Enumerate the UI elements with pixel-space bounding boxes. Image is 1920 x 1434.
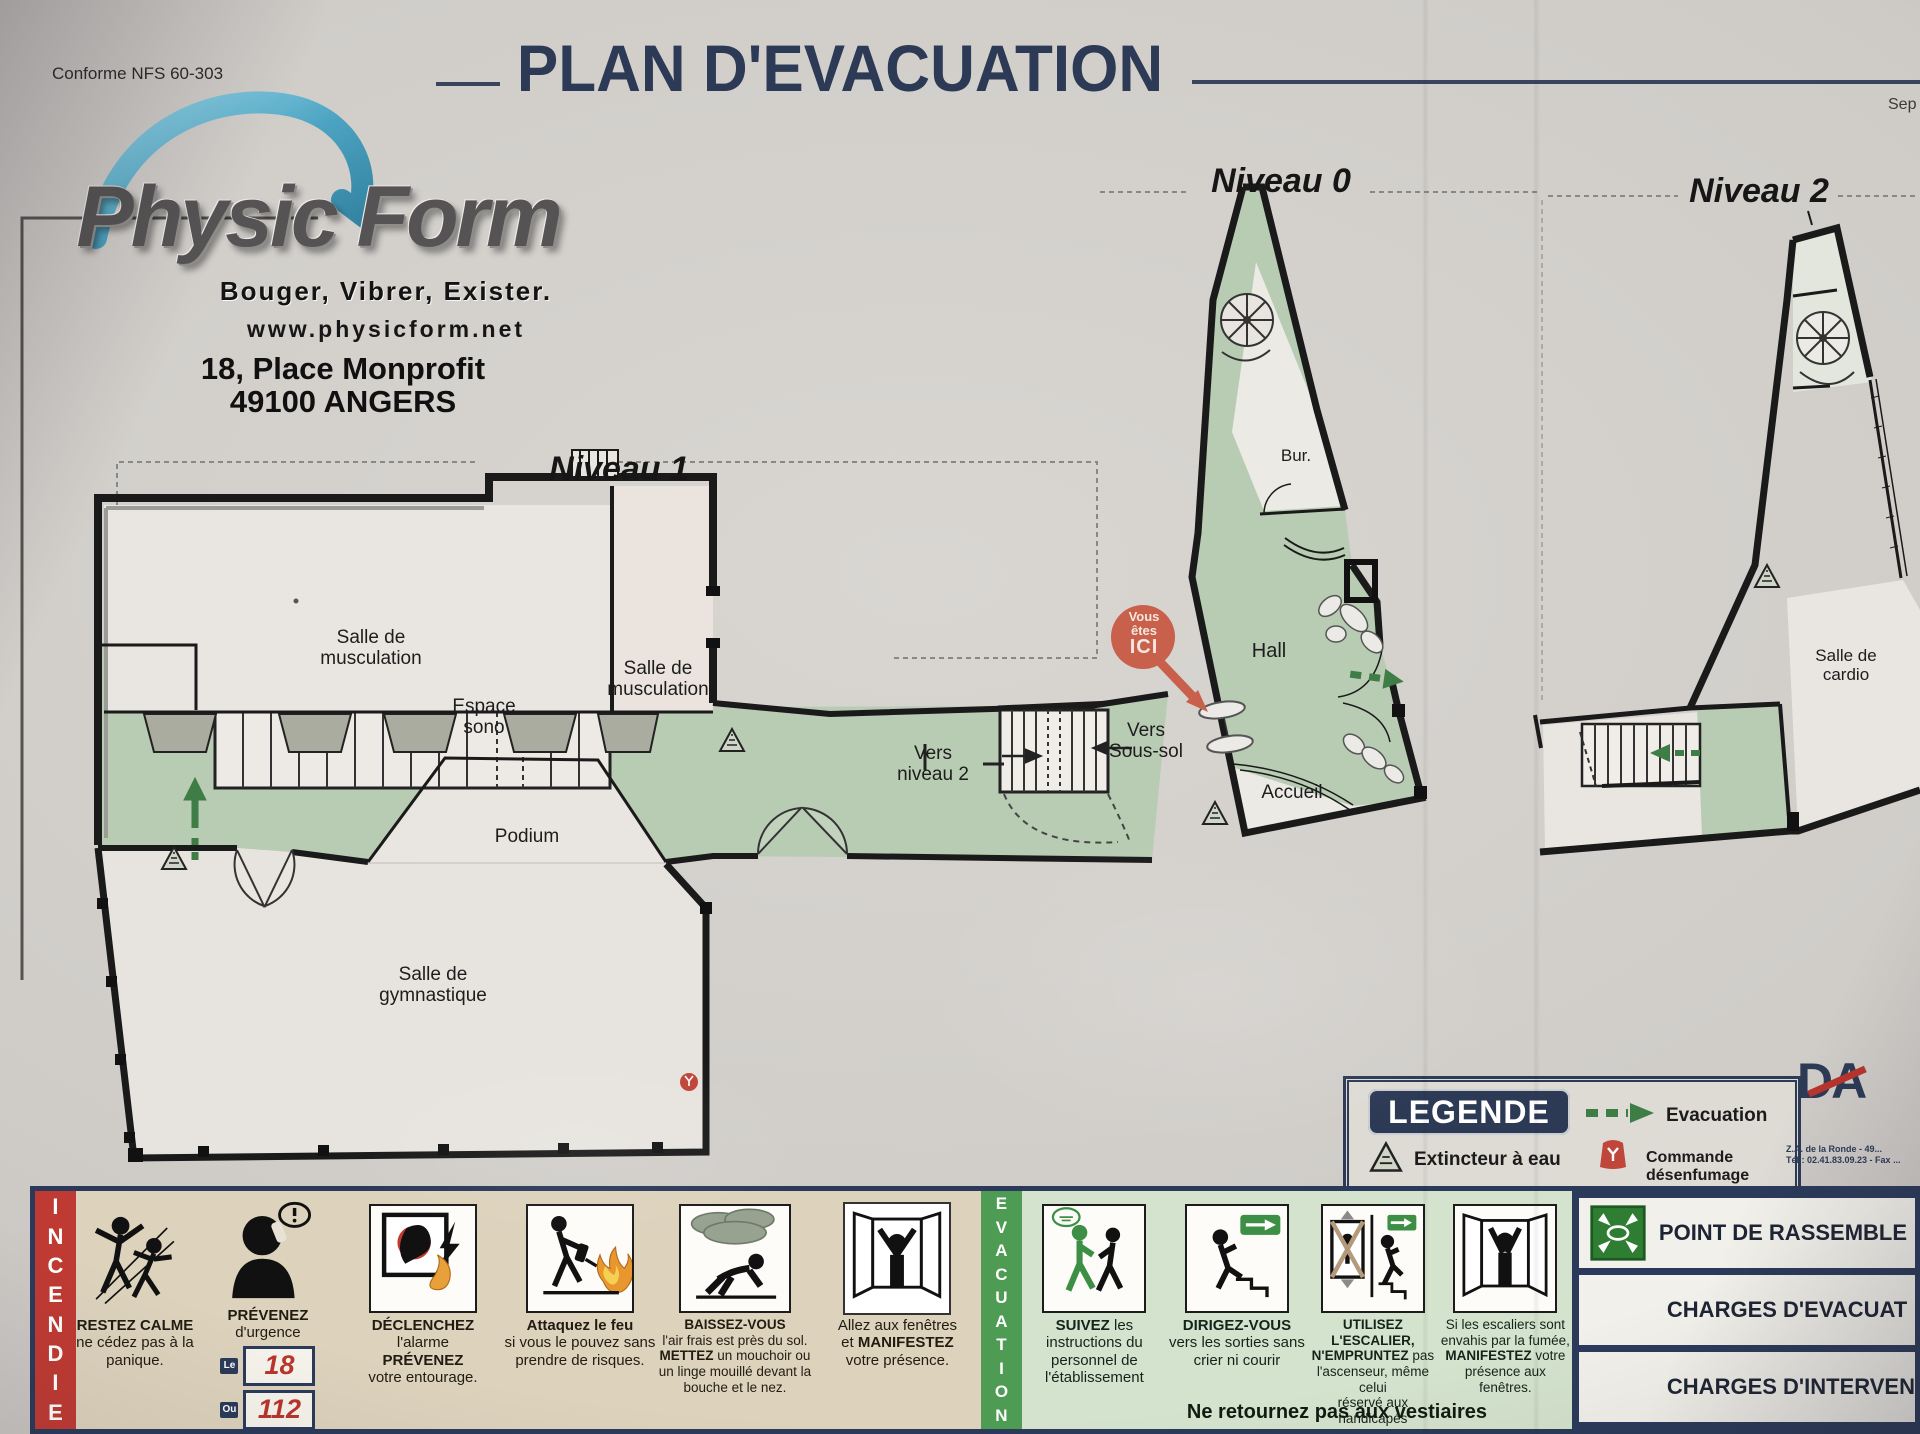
brand-website: www.physicform.net	[190, 316, 582, 343]
instruction-bold: METTEZ	[660, 1348, 714, 1363]
instruction-bold: BAISSEZ-VOUS	[684, 1317, 785, 1332]
vendor-contact: Z.A. de la Ronde - 49... Tél : 02.41.83.…	[1786, 1144, 1920, 1167]
instruction-strip: INCENDIE RESTEZ CALME ne cédez pas à	[30, 1186, 1920, 1434]
room-label-espace-sono: Espace sono	[436, 696, 532, 739]
instruction-text: d'urgence	[235, 1324, 300, 1341]
smoke-control-icon	[680, 1073, 698, 1091]
instruction-text: l'air frais est près du sol.	[662, 1333, 807, 1348]
room-label-line: Vers	[878, 743, 988, 764]
instruction-text: vers les sorties sans crier ni courir	[1169, 1334, 1305, 1368]
instruction-text: présence aux fenêtres.	[1465, 1364, 1546, 1395]
room-label-gym: Salle de gymnastique	[362, 964, 504, 1007]
instruction-text: si vous le pouvez sans prendre de risque…	[504, 1334, 655, 1368]
panel-prevenez: PRÉVENEZ d'urgence Le 18 Ou 112	[194, 1191, 342, 1429]
panel-attaquez: Attaquez le feu si vous le pouvez sans p…	[504, 1191, 656, 1429]
panel-dirigez: DIRIGEZ-VOUS vers les sorties sans crier…	[1167, 1191, 1307, 1429]
brand-tagline: Bouger, Vibrer, Exister.	[190, 276, 582, 307]
evacuation-banner: EVACUATION	[981, 1191, 1022, 1429]
room-label-line: gymnastique	[362, 985, 504, 1006]
right-info-column: POINT DE RASSEMBLE CHARGES D'EVACUAT CHA…	[1572, 1191, 1915, 1429]
instruction-text: l'alarme	[397, 1334, 449, 1351]
charges-intervention-box: CHARGES D'INTERVEN	[1579, 1352, 1915, 1422]
panel-fenetres: Allez aux fenêtres et MANIFESTEZ votre p…	[814, 1191, 981, 1429]
extinguisher-icon	[1368, 1141, 1404, 1173]
page-title: PLAN D'EVACUATION	[430, 32, 1250, 107]
room-label-line: Espace	[436, 696, 532, 717]
conformity-note: Conforme NFS 60-303	[52, 64, 223, 84]
address-line1: 18, Place Monprofit	[178, 352, 508, 385]
panel-escalier: UTILISEZ L'ESCALIER, N'EMPRUNTEZ pas l'a…	[1307, 1191, 1439, 1429]
vendor-phone: Tél : 02.41.83.09.23 - Fax ...	[1786, 1155, 1920, 1166]
legend-desenfumage-label: Commande désenfumage	[1646, 1149, 1796, 1185]
title-rule-right	[1192, 80, 1920, 84]
you-are-here-label: Vous êtes ICI	[1111, 610, 1177, 658]
room-label-line: cardio	[1804, 665, 1888, 684]
room-label-bureau: Bur.	[1266, 446, 1326, 465]
room-label-line: sono	[436, 717, 532, 738]
number-112: 112	[243, 1390, 315, 1430]
instruction-bold: SUIVEZ	[1056, 1317, 1110, 1334]
assembly-point-label: POINT DE RASSEMBLE	[1659, 1220, 1907, 1246]
room-label-hall: Hall	[1234, 640, 1304, 663]
panel-suivez: SUIVEZ les instructions du personnel de …	[1022, 1191, 1167, 1429]
window-manifest-icon	[1453, 1204, 1557, 1313]
room-label-line: Salle de	[1804, 646, 1888, 665]
instruction-text: l'ascenseur, même celui	[1317, 1364, 1429, 1395]
n2-landing-green	[1697, 704, 1790, 837]
emergency-number-18: Le 18	[220, 1346, 315, 1386]
date-fragment: Sep	[1888, 96, 1916, 114]
panel-baissez: BAISSEZ-VOUS l'air frais est près du sol…	[656, 1191, 814, 1429]
legend-title: LEGENDE	[1368, 1089, 1570, 1135]
charges-intervention-label: CHARGES D'INTERVEN	[1667, 1374, 1915, 1400]
room-label-line: Salle de	[296, 627, 446, 648]
level1-title: Niveau 1	[544, 450, 694, 489]
marker-line: ICI	[1111, 637, 1177, 658]
n2-cardio-room	[1787, 580, 1920, 830]
assembly-point-box: POINT DE RASSEMBLE	[1579, 1198, 1915, 1268]
instruction-bold: PRÉVENEZ	[228, 1307, 309, 1324]
room-label-line: niveau 2	[878, 764, 988, 785]
n1-room-musculation1	[104, 505, 612, 712]
marker-line: Vous	[1111, 610, 1177, 624]
instruction-text: votre entourage.	[368, 1369, 477, 1386]
instruction-bold: Attaquez le feu	[527, 1317, 634, 1334]
smoke-crawl-icon	[679, 1204, 791, 1313]
marker-line: êtes	[1111, 624, 1177, 638]
phone-call-icon	[216, 1199, 320, 1307]
instruction-text: envahis par la fumée,	[1441, 1333, 1570, 1348]
vendor-address: Z.A. de la Ronde - 49...	[1786, 1144, 1920, 1155]
incendie-banner: INCENDIE	[35, 1191, 76, 1429]
alarm-button-icon	[369, 1204, 477, 1313]
room-label-cardio: Salle de cardio	[1804, 646, 1888, 684]
panel-declenchez: DÉCLENCHEZ l'alarme PRÉVENEZ votre entou…	[342, 1191, 504, 1429]
room-label-line: Salle de	[362, 964, 504, 985]
level0-title: Niveau 0	[1196, 162, 1366, 201]
instruction-bold: N'EMPRUNTEZ	[1312, 1348, 1409, 1363]
charges-evacuation-label: CHARGES D'EVACUAT	[1667, 1297, 1907, 1323]
room-label-line: Sous-sol	[1096, 741, 1196, 762]
instruction-bold: MANIFESTEZ	[858, 1334, 954, 1351]
brand-logo-text: Physic Form	[44, 168, 592, 267]
assembly-point-icon	[1589, 1204, 1647, 1262]
number-18: 18	[243, 1346, 315, 1386]
window-manifest-icon	[843, 1202, 951, 1315]
legend-box: LEGENDE Extincteur à eau Evacuation Comm…	[1343, 1076, 1801, 1192]
room-label-line: Vers	[1096, 720, 1196, 741]
no-return-warning: Ne retournez pas aux vestiaires	[1187, 1401, 1487, 1424]
label-vers-soussol: Vers Sous-sol	[1096, 720, 1196, 763]
incendie-panels: RESTEZ CALME ne cédez pas à la panique. …	[76, 1191, 981, 1429]
instruction-text: votre présence.	[846, 1352, 949, 1369]
evacuation-arrow-icon	[1584, 1101, 1656, 1125]
extinguish-fire-icon	[526, 1204, 634, 1313]
n1-stairs-right	[1000, 710, 1108, 792]
room-label-line: Salle de	[592, 658, 724, 679]
instruction-bold: UTILISEZ L'ESCALIER,	[1331, 1317, 1414, 1348]
room-label-accueil: Accueil	[1244, 782, 1340, 803]
emergency-number-112: Ou 112	[220, 1390, 315, 1430]
instruction-bold: PRÉVENEZ	[383, 1352, 464, 1369]
level2-title: Niveau 2	[1684, 172, 1834, 211]
instruction-text: pas	[1409, 1348, 1435, 1363]
n2-stairwell	[1793, 228, 1872, 392]
panel-fumee: Si les escaliers sont envahis par la fum…	[1439, 1191, 1572, 1429]
room-label-podium: Podium	[481, 826, 573, 847]
room-label-line: musculation	[592, 679, 724, 700]
instruction-bold: MANIFESTEZ	[1445, 1348, 1531, 1363]
instruction-text: ne cédez pas à la panique.	[76, 1334, 194, 1368]
room-label-musculation2: Salle de musculation	[592, 658, 724, 701]
panel-restez-calme: RESTEZ CALME ne cédez pas à la panique.	[76, 1191, 194, 1429]
instruction-bold: DÉCLENCHEZ	[372, 1317, 475, 1334]
instruction-text: votre	[1532, 1348, 1566, 1363]
no-elevator-icon	[1321, 1204, 1425, 1313]
instruction-bold: DIRIGEZ-VOUS	[1183, 1317, 1291, 1334]
extinguisher-icon	[1203, 802, 1227, 824]
legend-evacuation-label: Evacuation	[1666, 1105, 1767, 1127]
number-prefix: Le	[220, 1358, 238, 1374]
address-line2: 49100 ANGERS	[178, 385, 508, 418]
room-label-line: musculation	[296, 648, 446, 669]
follow-staff-icon	[1042, 1204, 1146, 1313]
instruction-bold: RESTEZ CALME	[77, 1317, 194, 1334]
exit-direction-icon	[1185, 1204, 1289, 1313]
title-rule-left	[436, 82, 500, 86]
label-vers-niveau2: Vers niveau 2	[878, 743, 988, 786]
smoke-control-icon	[1598, 1139, 1628, 1171]
panic-figures-icon	[85, 1199, 185, 1317]
instruction-text: Si les escaliers sont	[1446, 1317, 1565, 1332]
evacuation-panels: SUIVEZ les instructions du personnel de …	[1022, 1191, 1572, 1429]
room-label-musculation1: Salle de musculation	[296, 627, 446, 670]
legend-extincteur-label: Extincteur à eau	[1414, 1149, 1561, 1171]
number-prefix: Ou	[220, 1402, 238, 1418]
site-address: 18, Place Monprofit 49100 ANGERS	[178, 352, 508, 419]
instruction-text: Allez aux fenêtres	[838, 1317, 957, 1334]
charges-evacuation-box: CHARGES D'EVACUAT	[1579, 1275, 1915, 1345]
instruction-text: et	[841, 1334, 858, 1351]
extinguisher-icon	[1755, 565, 1779, 587]
